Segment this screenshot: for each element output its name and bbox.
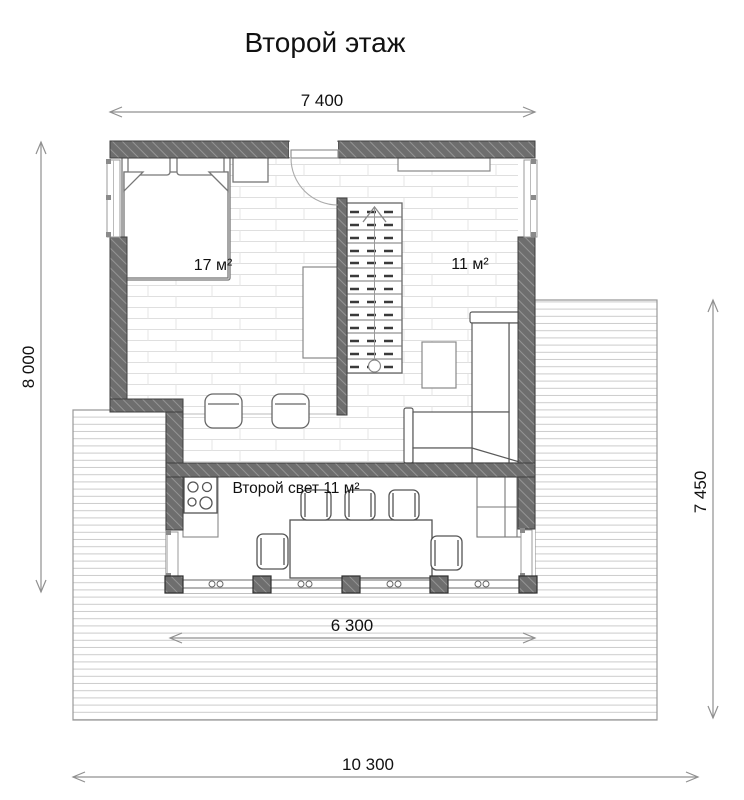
window-lower-left (166, 530, 178, 578)
wall-step (110, 399, 183, 412)
stair-walkline-start (369, 360, 381, 372)
column-5 (519, 576, 537, 593)
dining-chair-right (431, 536, 462, 570)
dim-bottom-label: 10 300 (342, 755, 394, 774)
floor-plan: Второй этаж 7 400 8 000 7 450 6 300 10 3… (0, 0, 744, 800)
column-3 (342, 576, 360, 593)
wall-middle (166, 463, 535, 477)
dining-chair-left (257, 534, 288, 569)
column-1 (165, 576, 183, 593)
wall-right (518, 237, 535, 529)
stove (184, 477, 217, 513)
wall-top-right (338, 141, 535, 158)
window-upper-right (524, 159, 537, 237)
dim-top-label: 7 400 (301, 91, 344, 110)
dining-chair-top-3 (389, 490, 419, 520)
dining-table (290, 520, 432, 578)
wall-top-left (110, 141, 289, 158)
column-4 (430, 576, 448, 593)
floor-plan-drawing: Второй этаж 7 400 8 000 7 450 6 300 10 3… (0, 0, 744, 800)
wall-shelf (398, 158, 490, 171)
stool-1 (205, 394, 242, 428)
coffee-table (422, 342, 456, 388)
desk (303, 267, 340, 358)
stool-2 (272, 394, 309, 428)
dim-right-label: 7 450 (691, 471, 710, 514)
window-lower-right (520, 528, 532, 578)
dim-left-label: 8 000 (19, 346, 38, 389)
window-upper-left (106, 159, 120, 237)
column-2 (253, 576, 271, 593)
page-title: Второй этаж (245, 27, 406, 58)
staircase (347, 203, 402, 373)
dim-terrace-label: 6 300 (331, 616, 374, 635)
door-leaf (291, 150, 338, 158)
hall-area-label: 11 м² (451, 256, 489, 273)
kitchen-counter-left (183, 473, 218, 537)
bedroom-area-label: 17 м² (194, 257, 233, 274)
wall-left (110, 237, 127, 402)
void-area-label: Второй свет 11 м² (232, 480, 359, 497)
bedside-cabinet (233, 155, 268, 182)
wall-stairs (337, 198, 347, 415)
